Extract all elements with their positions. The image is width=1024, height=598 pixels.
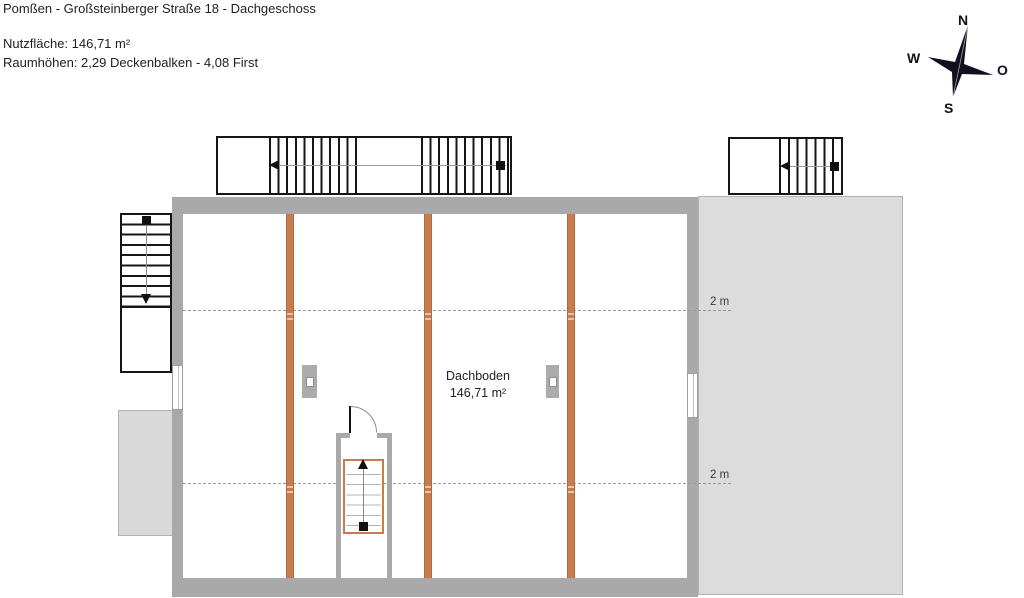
stair-landing (122, 306, 170, 371)
stairwell-wall-left (336, 433, 341, 578)
door-swing-arc (349, 405, 378, 434)
height-marker-label: 2 m (710, 296, 729, 308)
compass-north-label: N (958, 12, 968, 28)
room-area: 146,71 m² (418, 385, 538, 402)
stair-start-marker (496, 161, 505, 170)
stair-direction-arrow-icon (269, 160, 279, 170)
stair-direction-line (146, 222, 147, 298)
ceiling-beam (567, 214, 575, 578)
stair-direction-arrow-icon (141, 294, 151, 304)
chimney (546, 365, 559, 398)
stairwell-wall-top-right (377, 433, 392, 438)
right-roof-area (698, 196, 903, 595)
stair-direction-line (785, 166, 833, 167)
ceiling-beam (286, 214, 294, 578)
stair-direction-arrow-icon (780, 161, 790, 171)
room-label: Dachboden 146,71 m² (418, 368, 538, 402)
stair-start-marker (830, 162, 839, 171)
stairwell-wall-right (387, 433, 392, 578)
room-heights-line: Raumhöhen: 2,29 Deckenbalken - 4,08 Firs… (3, 55, 258, 70)
compass-south-label: S (944, 100, 953, 116)
room-name: Dachboden (418, 368, 538, 385)
stair-direction-line (363, 466, 364, 524)
stair-landing (730, 139, 781, 193)
stair-landing (218, 138, 271, 193)
east-window (687, 373, 698, 418)
height-line-south (183, 483, 731, 484)
stair-direction-line (274, 165, 506, 166)
interior-stair-treads (346, 474, 381, 527)
stairwell-wall-top-left (336, 433, 350, 438)
height-marker-label: 2 m (710, 469, 729, 481)
stair-start-marker (142, 216, 151, 225)
height-line-north (183, 310, 731, 311)
compass-west-label: W (907, 50, 920, 66)
west-window (172, 365, 183, 410)
floor-plan-page: Pomßen - Großsteinberger Straße 18 - Dac… (0, 0, 1024, 598)
stair-start-marker (359, 522, 368, 531)
chimney (302, 365, 317, 398)
stair-direction-arrow-icon (358, 459, 368, 469)
page-title: Pomßen - Großsteinberger Straße 18 - Dac… (3, 1, 316, 16)
left-annex-area (118, 410, 173, 536)
usable-area-line: Nutzfläche: 146,71 m² (3, 36, 130, 51)
compass-east-label: O (997, 62, 1008, 78)
